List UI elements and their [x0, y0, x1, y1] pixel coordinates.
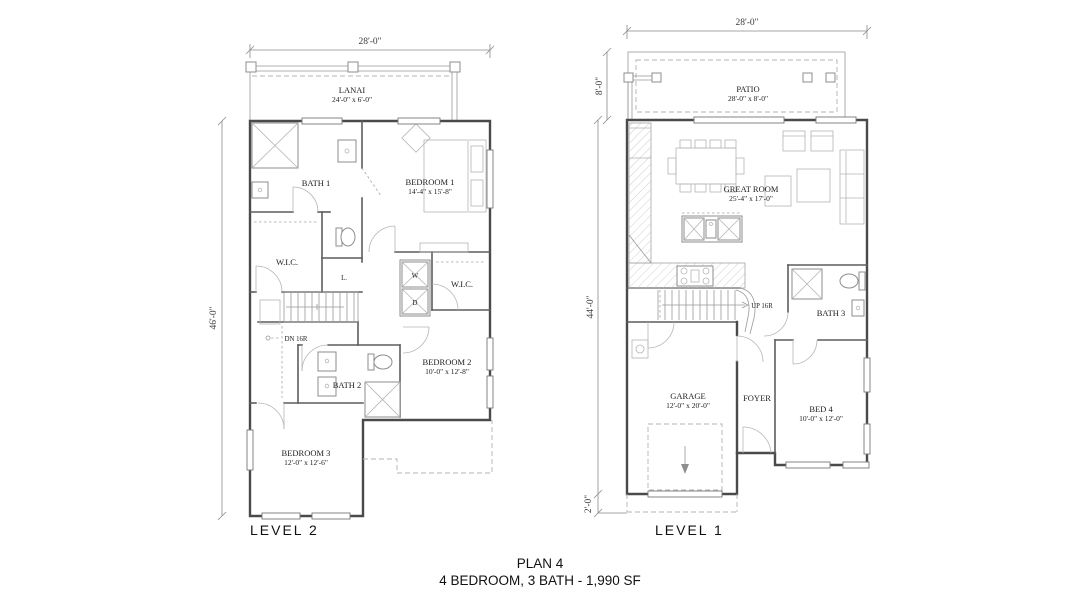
level2-plan: 28'-0" 46'-0" LANAI 24'-0" x 6'-0" — [209, 37, 494, 538]
lanai-column — [246, 62, 256, 72]
lanai-label: LANAI — [339, 85, 366, 95]
level2-dimension-top: 28'-0" — [246, 37, 494, 58]
stairs-down-label: DN 16R — [285, 336, 308, 343]
garage-label: GARAGE — [670, 391, 705, 401]
level1-dimension-patio: 8'-0" — [595, 48, 611, 124]
level1-dim-left-label: 44'-0" — [586, 295, 596, 318]
bath1-shower — [252, 123, 298, 168]
level1-doors — [648, 312, 817, 453]
sofa — [840, 150, 864, 224]
level2-title: LEVEL 2 — [250, 522, 319, 538]
level1-dimension-bottom-left: 2'-0" — [584, 494, 627, 517]
coffee-table — [797, 169, 830, 202]
lanai: LANAI 24'-0" x 6'-0" — [246, 62, 460, 120]
bedroom3-label: BEDROOM 3 — [282, 448, 331, 458]
level1-dimension-left: 44'-0" — [586, 116, 602, 498]
cooktop — [677, 266, 713, 286]
sheet-title-block: PLAN 4 4 BEDROOM, 3 BATH - 1,990 SF — [439, 556, 641, 588]
bedroom3-dims: 12'-0" x 12'-6" — [284, 458, 328, 467]
lanai-column — [348, 62, 358, 72]
bedroom1-dims: 14'-4" x 15'-8" — [408, 187, 452, 196]
wic-right-label: W.I.C. — [451, 279, 473, 289]
floor-plan-sheet: 28'-0" 46'-0" LANAI 24'-0" x 6'-0" — [0, 0, 1080, 608]
bed4-dims: 10'-0" x 12'-0" — [799, 414, 843, 423]
level1-exterior-walls — [627, 120, 867, 494]
level1-dim-patio-label: 8'-0" — [595, 77, 605, 95]
level2-dim-top-label: 28'-0" — [358, 37, 381, 47]
bath2-label: BATH 2 — [333, 380, 362, 390]
wic-right: W.I.C. — [436, 262, 486, 289]
plan-name: PLAN 4 — [517, 556, 564, 571]
level1-dimension-top: 28'-0" — [623, 18, 871, 39]
utility-box — [632, 340, 648, 358]
kitchen-island — [682, 213, 742, 242]
bed4-label: BED 4 — [809, 404, 833, 414]
level2-roof-outline — [363, 420, 492, 473]
garage-dims: 12'-0" x 20'-0" — [666, 401, 710, 410]
stairs-up-label: UP 16R — [751, 303, 773, 310]
bedroom2-dims: 10'-0" x 12'-8" — [425, 367, 469, 376]
bedroom1-label: BEDROOM 1 — [406, 177, 455, 187]
great-room-dims: 25'-4" x 17'-0" — [729, 194, 773, 203]
level2-dim-left-label: 46'-0" — [209, 306, 219, 329]
great-room-furniture — [668, 131, 864, 224]
bath3-label: BATH 3 — [817, 308, 846, 318]
bedroom2-label: BEDROOM 2 — [423, 357, 472, 367]
level1-dim-top-label: 28'-0" — [735, 18, 758, 28]
foyer-label: FOYER — [743, 393, 771, 403]
level1-interior-walls — [627, 265, 867, 453]
level1-title: LEVEL 1 — [655, 522, 724, 538]
level1-windows — [694, 117, 870, 468]
plan-spec: 4 BEDROOM, 3 BATH - 1,990 SF — [439, 573, 641, 588]
level1-dim-bottom-label: 2'-0" — [584, 495, 594, 513]
great-room-label: GREAT ROOM — [724, 184, 779, 194]
level2-dimension-left: 46'-0" — [209, 117, 226, 520]
patio-dims: 28'-0" x 8'-0" — [728, 94, 768, 103]
linen-label: L. — [341, 275, 347, 282]
lanai-dims: 24'-0" x 6'-0" — [332, 95, 372, 104]
patio: PATIO 28'-0" x 8'-0" — [624, 52, 845, 120]
patio-label: PATIO — [736, 84, 759, 94]
washer-dryer: W D — [400, 260, 430, 316]
toilet-room — [336, 228, 355, 246]
garage-arrow — [681, 464, 689, 474]
level1-plan: 28'-0" 8'-0" 44'-0" 2'-0" — [584, 18, 871, 538]
lanai-column — [450, 62, 460, 72]
armchair — [811, 131, 833, 151]
washer-label: W — [412, 273, 419, 280]
wic-left-label: W.I.C. — [276, 257, 298, 267]
armchair — [783, 131, 805, 151]
bath1-label: BATH 1 — [302, 178, 331, 188]
wic-left: W.I.C. — [254, 222, 318, 267]
dryer-label: D — [413, 300, 418, 307]
